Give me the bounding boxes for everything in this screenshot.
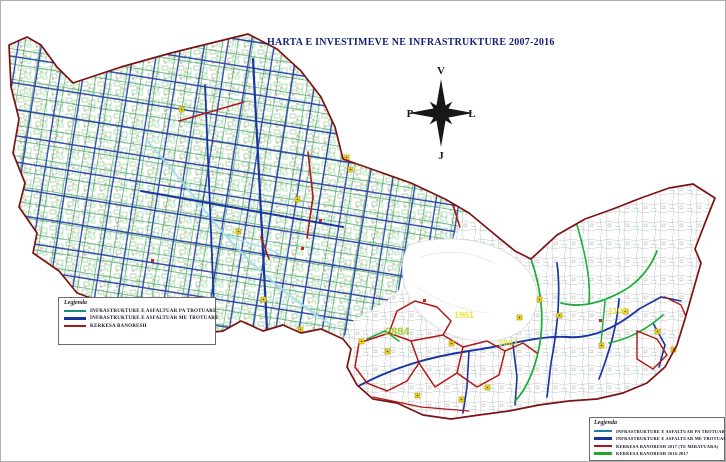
map-title: HARTA E INVESTIMEVE NE INFRASTRUKTURE 20… xyxy=(267,37,555,48)
legend-item: KERKESA BANORESH xyxy=(64,324,210,329)
legend-item-label: INFRASTRUKTURE E ASFALTUAR ME TROTUARE xyxy=(90,316,219,321)
legend-item-label: INFRASTRUKTURE E ASFALTUAR PA TROTUARE T… xyxy=(616,429,726,434)
zone-count-label: 1100 xyxy=(608,306,628,316)
legend-item-label: KERKESA BANORESH 2017 (TE MIRATUARA) xyxy=(616,444,719,449)
legend-item: INFRASTRUKTURE E ASFALTUAR PA TROTUARE T… xyxy=(594,429,720,434)
legend-item: INFRASTRUKTURE E ASFALTUAR ME TROTUARE xyxy=(64,316,210,321)
legend-swatch-no-sidewalk xyxy=(64,310,86,312)
zone-count-label: 2884 xyxy=(385,326,410,338)
legend-swatch-requests-2017 xyxy=(594,445,612,447)
legend-item: INFRASTRUKTURE E ASFALTUAR PA TROTUARE xyxy=(64,309,210,314)
compass-label-north: V xyxy=(437,65,445,77)
legend-swatch-with-sidewalk xyxy=(64,317,86,319)
legend-swatch-requests xyxy=(64,325,86,327)
zone-count-label: 3067 xyxy=(498,338,518,348)
legend-right-title: Legjenda xyxy=(594,420,720,426)
legend-swatch-no-sidewalk xyxy=(594,430,612,432)
compass-rose: V J L P xyxy=(403,59,479,163)
legend-left-title: Legjenda xyxy=(64,300,210,306)
map-canvas: 2884 1961 3067 1100 xyxy=(1,1,726,462)
legend-swatch-requests-2016-2017 xyxy=(594,452,612,454)
legend-item-label: KERKESA BANORESH 2016-2017 xyxy=(616,451,688,456)
legend-swatch-with-sidewalk xyxy=(594,437,612,439)
compass-label-south: J xyxy=(438,150,444,162)
compass-star-icon xyxy=(409,79,473,147)
map-document: 2884 1961 3067 1100 HARTA E INVESTIMEVE … xyxy=(0,0,726,462)
legend-right: Legjenda INFRASTRUKTURE E ASFALTUAR PA T… xyxy=(589,417,725,461)
compass-label-east: L xyxy=(468,108,475,120)
legend-item-label: KERKESA BANORESH xyxy=(90,324,147,329)
legend-item: KERKESA BANORESH 2017 (TE MIRATUARA) xyxy=(594,444,720,449)
legend-item-label: INFRASTRUKTURE E ASFALTUAR PA TROTUARE xyxy=(90,309,217,314)
legend-item: INFRASTRUKTURE E ASFALTUAR ME TROTUARE xyxy=(594,436,720,441)
zone-count-label: 1961 xyxy=(454,310,474,320)
legend-item-label: INFRASTRUKTURE E ASFALTUAR ME TROTUARE xyxy=(616,436,726,441)
compass-label-west: P xyxy=(407,108,414,120)
legend-left: Legjenda INFRASTRUKTURE E ASFALTUAR PA T… xyxy=(58,297,216,345)
legend-item: KERKESA BANORESH 2016-2017 xyxy=(594,451,720,456)
